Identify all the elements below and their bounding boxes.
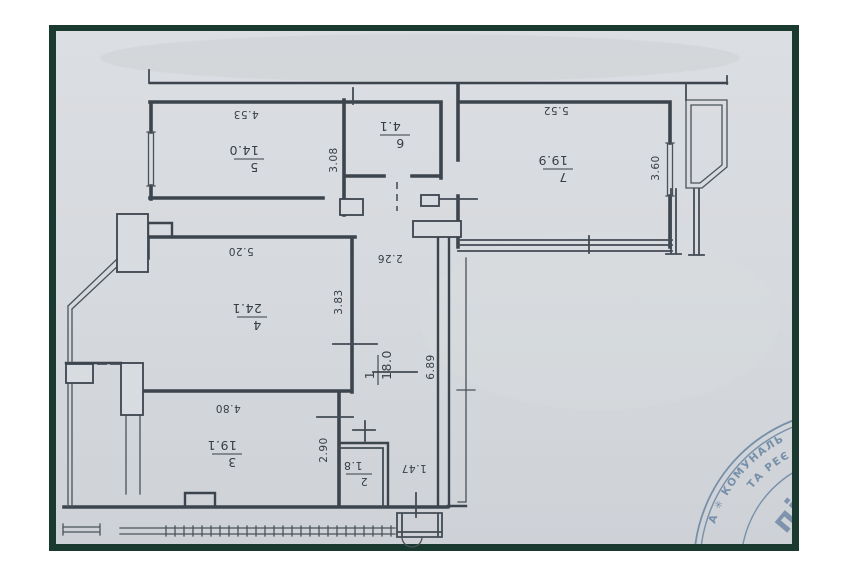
room-1-number: 1 — [362, 371, 377, 379]
room-5-area: 14.0 — [229, 143, 259, 158]
wall-pier — [117, 214, 148, 272]
scanned-floor-plan-photo: 5 14.0 6 4.1 7 19.9 4 24.1 1 18.0 3 19.1 — [0, 0, 850, 570]
dim-room7-depth: 3.60 — [650, 155, 662, 180]
dim-room3-width: 4.80 — [215, 402, 240, 414]
wall-pier — [421, 195, 439, 206]
wall-pier — [66, 364, 93, 383]
room-1-area: 18.0 — [379, 350, 394, 380]
floor-plan-svg: 5 14.0 6 4.1 7 19.9 4 24.1 1 18.0 3 19.1 — [0, 0, 850, 570]
room-2-area: 1.8 — [344, 459, 363, 472]
room-7-number: 7 — [559, 170, 567, 185]
wall-pier — [121, 363, 143, 415]
dim-entrance-width: 1.47 — [401, 462, 426, 474]
paper-highlight — [420, 230, 780, 410]
dim-corridor-width: 2.26 — [377, 252, 402, 264]
dim-room3-depth: 2.90 — [318, 437, 330, 462]
paper-smudge — [100, 34, 740, 82]
room-2-number: 2 — [360, 475, 368, 488]
dim-room7-width: 5.52 — [543, 104, 568, 116]
room-3-number: 3 — [228, 455, 236, 470]
room-6-number: 6 — [396, 136, 404, 151]
dim-room4-width: 5.20 — [228, 245, 253, 257]
room-5-number: 5 — [250, 160, 258, 175]
room-4-number: 4 — [253, 318, 261, 333]
room-4-area: 24.1 — [232, 301, 262, 316]
room-6-area: 4.1 — [379, 119, 400, 134]
wall-pier — [340, 199, 363, 215]
dim-corridor-length: 6.89 — [425, 354, 437, 379]
room-7-area: 19.9 — [538, 153, 568, 168]
dim-room5-depth: 3.08 — [328, 147, 340, 172]
room-3-area: 19.1 — [207, 438, 237, 453]
dim-room5-width: 4.53 — [233, 108, 258, 120]
wall-pier — [413, 221, 461, 237]
dim-room4-depth: 3.83 — [333, 289, 345, 314]
